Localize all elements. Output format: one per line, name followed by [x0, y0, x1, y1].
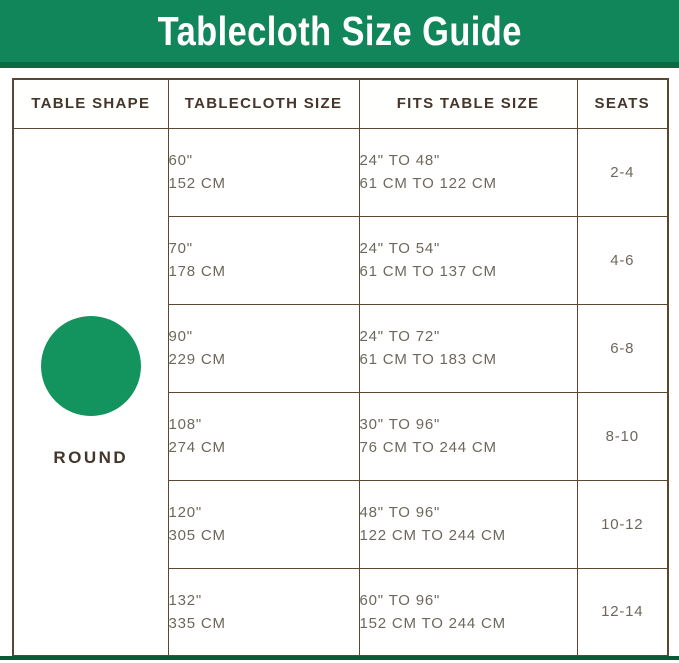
seats-cell: 12-14 — [577, 568, 668, 656]
fits-table-size-cell: 24" TO 72" 61 CM TO 183 CM — [359, 304, 577, 392]
size-cm: 335 CM — [169, 612, 359, 635]
size-cm: 178 CM — [169, 260, 359, 283]
header-row: TABLE SHAPE TABLECLOTH SIZE FITS TABLE S… — [13, 79, 668, 128]
column-header-tablecloth-size: TABLECLOTH SIZE — [168, 79, 359, 128]
seats-cell: 2-4 — [577, 128, 668, 216]
fits-inches: 60" TO 96" — [360, 589, 577, 612]
title-banner: Tablecloth Size Guide — [0, 0, 679, 68]
tablecloth-size-cell: 132" 335 CM — [168, 568, 359, 656]
seats-cell: 6-8 — [577, 304, 668, 392]
shape-cell: ROUND — [13, 128, 168, 656]
table-row: ROUND 60" 152 CM 24" TO 48" 61 CM TO 122… — [13, 128, 668, 216]
tablecloth-size-cell: 90" 229 CM — [168, 304, 359, 392]
size-inches: 70" — [169, 237, 359, 260]
fits-cm: 61 CM TO 137 CM — [360, 260, 577, 283]
fits-table-size-cell: 60" TO 96" 152 CM TO 244 CM — [359, 568, 577, 656]
tablecloth-size-cell: 108" 274 CM — [168, 392, 359, 480]
fits-inches: 48" TO 96" — [360, 501, 577, 524]
fits-table-size-cell: 24" TO 48" 61 CM TO 122 CM — [359, 128, 577, 216]
size-inches: 60" — [169, 149, 359, 172]
fits-table-size-cell: 48" TO 96" 122 CM TO 244 CM — [359, 480, 577, 568]
round-shape-icon — [41, 316, 141, 416]
size-cm: 229 CM — [169, 348, 359, 371]
size-inches: 108" — [169, 413, 359, 436]
size-inches: 132" — [169, 589, 359, 612]
bottom-accent-bar — [0, 656, 679, 660]
shape-label: ROUND — [14, 448, 168, 468]
size-cm: 274 CM — [169, 436, 359, 459]
fits-cm: 61 CM TO 183 CM — [360, 348, 577, 371]
seats-cell: 8-10 — [577, 392, 668, 480]
fits-cm: 76 CM TO 244 CM — [360, 436, 577, 459]
fits-inches: 30" TO 96" — [360, 413, 577, 436]
size-inches: 90" — [169, 325, 359, 348]
tablecloth-size-cell: 60" 152 CM — [168, 128, 359, 216]
seats-cell: 4-6 — [577, 216, 668, 304]
tablecloth-size-cell: 120" 305 CM — [168, 480, 359, 568]
fits-cm: 122 CM TO 244 CM — [360, 524, 577, 547]
fits-inches: 24" TO 72" — [360, 325, 577, 348]
fits-table-size-cell: 30" TO 96" 76 CM TO 244 CM — [359, 392, 577, 480]
seats-cell: 10-12 — [577, 480, 668, 568]
column-header-fits-table-size: FITS TABLE SIZE — [359, 79, 577, 128]
fits-cm: 61 CM TO 122 CM — [360, 172, 577, 195]
fits-inches: 24" TO 48" — [360, 149, 577, 172]
column-header-seats: SEATS — [577, 79, 668, 128]
size-cm: 305 CM — [169, 524, 359, 547]
fits-cm: 152 CM TO 244 CM — [360, 612, 577, 635]
fits-inches: 24" TO 54" — [360, 237, 577, 260]
tablecloth-size-cell: 70" 178 CM — [168, 216, 359, 304]
size-cm: 152 CM — [169, 172, 359, 195]
page-title: Tablecloth Size Guide — [157, 8, 521, 55]
size-guide-table: TABLE SHAPE TABLECLOTH SIZE FITS TABLE S… — [12, 78, 669, 657]
size-inches: 120" — [169, 501, 359, 524]
column-header-table-shape: TABLE SHAPE — [13, 79, 168, 128]
fits-table-size-cell: 24" TO 54" 61 CM TO 137 CM — [359, 216, 577, 304]
